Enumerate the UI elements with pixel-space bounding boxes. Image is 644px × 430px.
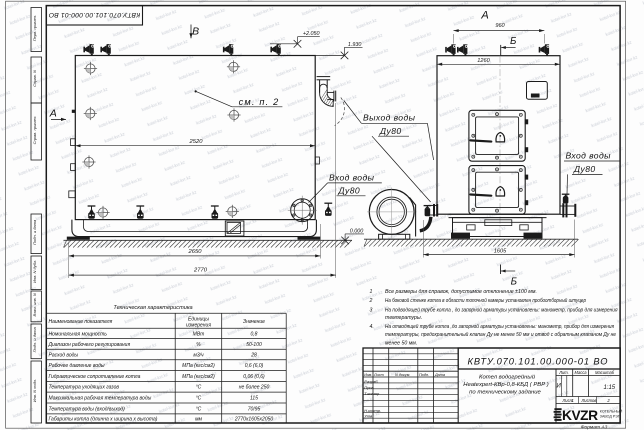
svg-text:На боковой стенке котла в обла: На боковой стенке котла в области топочн… — [385, 297, 586, 304]
svg-text:Масса: Масса — [574, 370, 587, 375]
svg-text:температуры.: температуры. — [385, 315, 422, 321]
svg-text:Дата: Дата — [434, 373, 445, 377]
svg-text:ЗАВОД РЭП: ЗАВОД РЭП — [600, 415, 621, 419]
svg-text:КВТУ.070.101.00.000-01 ВО: КВТУ.070.101.00.000-01 ВО — [48, 11, 140, 18]
svg-text:1:15: 1:15 — [603, 385, 615, 391]
svg-text:Диапазон рабочего регулировани: Диапазон рабочего регулирования — [48, 342, 131, 348]
svg-text:2770х1605х2050: 2770х1605х2050 — [234, 416, 274, 422]
svg-text:Н.контр.: Н.контр. — [364, 408, 381, 413]
svg-text:Инв. N дубл.: Инв. N дубл. — [32, 260, 37, 283]
svg-text:0,6 (6,0): 0,6 (6,0) — [245, 363, 264, 369]
svg-text:Изм.: Изм. — [364, 373, 372, 377]
svg-text:1.930: 1.930 — [348, 42, 362, 48]
svg-text:Подп.: Подп. — [419, 373, 429, 377]
svg-text:Пров.: Пров. — [364, 385, 375, 390]
svg-text:Перв. примен.: Перв. примен. — [32, 15, 37, 42]
svg-text:70/95: 70/95 — [248, 406, 261, 412]
svg-text:115: 115 — [250, 395, 258, 401]
svg-text:А: А — [480, 10, 488, 22]
svg-text:см. п. 2: см. п. 2 — [239, 97, 280, 107]
svg-text:960: 960 — [495, 23, 505, 29]
svg-text:50-100: 50-100 — [246, 342, 262, 348]
svg-text:КВТУ.070.101.00.000-01 ВО: КВТУ.070.101.00.000-01 ВО — [468, 357, 609, 367]
svg-text:0,8: 0,8 — [251, 331, 258, 337]
svg-text:0.000: 0.000 — [350, 228, 364, 234]
svg-text:Формат А3: Формат А3 — [581, 425, 608, 430]
svg-text:Рабочее давление воды: Рабочее давление воды — [49, 363, 105, 369]
svg-text:Техническая характеристика: Техническая характеристика — [113, 305, 192, 311]
svg-text:А: А — [49, 107, 57, 119]
svg-text:м3/ч: м3/ч — [193, 352, 204, 358]
svg-text:МПа (кгс/см2): МПа (кгс/см2) — [182, 374, 215, 380]
svg-text:На подводящей трубе котла , д: На подводящей трубе котла , до запорной … — [385, 307, 618, 314]
svg-text:Разраб.: Разраб. — [364, 379, 378, 384]
svg-text:КОТЕЛЬНЫЙ: КОТЕЛЬНЫЙ — [600, 409, 623, 413]
svg-text:Подп. и дата: Подп. и дата — [32, 327, 37, 353]
svg-text:Номинальная мощность: Номинальная мощность — [49, 331, 108, 337]
svg-text:Все размеры для справок, допус: Все размеры для справок, допустимое откл… — [385, 289, 537, 295]
svg-text:измерения: измерения — [186, 323, 211, 329]
svg-text:+2.050: +2.050 — [303, 31, 320, 37]
svg-text:4.: 4. — [370, 324, 374, 330]
svg-text:Т.контр.: Т.контр. — [364, 391, 380, 396]
svg-text:2650: 2650 — [188, 249, 203, 255]
svg-text:Справ. N: Справ. N — [32, 70, 37, 87]
svg-text:Единицы: Единицы — [188, 316, 209, 322]
svg-text:N докум.: N докум. — [395, 373, 410, 377]
svg-text:мм: мм — [195, 416, 202, 422]
svg-text:2770: 2770 — [193, 268, 208, 274]
svg-text:Габариты котла (длинна х ширин: Габариты котла (длинна х ширина х высота… — [49, 416, 158, 422]
svg-text:Листов: Листов — [581, 398, 598, 403]
svg-text:Значение: Значение — [243, 319, 265, 325]
svg-text:1605: 1605 — [494, 248, 507, 254]
svg-text:Гидравлическое сопротивление к: Гидравлическое сопротивление котла — [49, 374, 141, 380]
svg-text:Heatexpert-КВр-0,8-КБД ( РВР ): Heatexpert-КВр-0,8-КБД ( РВР ) — [463, 382, 549, 388]
svg-text:Ду80: Ду80 — [338, 186, 361, 196]
svg-text:менее 50 мм.: менее 50 мм. — [385, 340, 417, 346]
svg-text:Котел водогрейный: Котел водогрейный — [479, 374, 536, 381]
svg-text:Лит.: Лит. — [558, 370, 569, 375]
svg-text:Расход воды: Расход воды — [49, 352, 79, 358]
svg-text:Наименование показателя: Наименование показателя — [49, 319, 113, 325]
svg-text:KVZR: KVZR — [562, 408, 598, 423]
svg-text:по техническому задание: по техническому задание — [469, 390, 541, 396]
svg-text:3: 3 — [370, 308, 373, 314]
svg-text:2: 2 — [369, 298, 373, 304]
svg-text:Ду80: Ду80 — [573, 164, 596, 174]
svg-text:И: И — [556, 383, 561, 389]
svg-text:%: % — [196, 342, 201, 348]
svg-text:МПа (кгс/см2): МПа (кгс/см2) — [182, 363, 215, 369]
svg-text:Взам. инв. N: Взам. инв. N — [32, 293, 37, 316]
svg-text:Ду80: Ду80 — [379, 126, 402, 136]
svg-text:Подп. и дата: Подп. и дата — [32, 219, 37, 245]
svg-text:температуры, предохранительный: температуры, предохранительный клапан Ду… — [385, 331, 616, 338]
svg-text:Справ. примен.: Справ. примен. — [32, 116, 37, 145]
svg-text:1: 1 — [370, 289, 373, 295]
svg-text:Вход воды: Вход воды — [329, 172, 375, 182]
svg-text:°С: °С — [196, 385, 202, 391]
svg-text:Б: Б — [510, 36, 517, 47]
svg-text:Выход воды: Выход воды — [363, 113, 416, 123]
svg-text:не более 250: не более 250 — [239, 385, 270, 391]
svg-text:МВт: МВт — [193, 331, 205, 337]
svg-text:2520: 2520 — [189, 139, 204, 145]
svg-text:Утв.: Утв. — [364, 414, 373, 419]
svg-text:Лист: Лист — [373, 373, 384, 377]
svg-text:На отводящей трубе котла ,до з: На отводящей трубе котла ,до запорной ар… — [385, 323, 614, 330]
svg-text:0,06 (0,6): 0,06 (0,6) — [243, 374, 265, 380]
svg-text:В: В — [192, 26, 199, 38]
svg-text:Вход воды: Вход воды — [566, 150, 612, 160]
svg-text:1260: 1260 — [477, 58, 490, 64]
svg-text:Температура воды (вход/выход): Температура воды (вход/выход) — [49, 406, 126, 412]
svg-text:Масштаб: Масштаб — [595, 370, 615, 375]
svg-text:28: 28 — [250, 352, 257, 358]
svg-text:°С: °С — [196, 395, 202, 401]
svg-text:1: 1 — [571, 398, 573, 403]
svg-text:Б: Б — [511, 277, 518, 288]
svg-text:Максимальная рабочая температу: Максимальная рабочая температура воды — [49, 395, 152, 401]
svg-text:Инв. N подл.: Инв. N подл. — [32, 379, 37, 402]
svg-text:°С: °С — [196, 406, 202, 412]
svg-text:Температура уходящих газов: Температура уходящих газов — [49, 385, 120, 391]
